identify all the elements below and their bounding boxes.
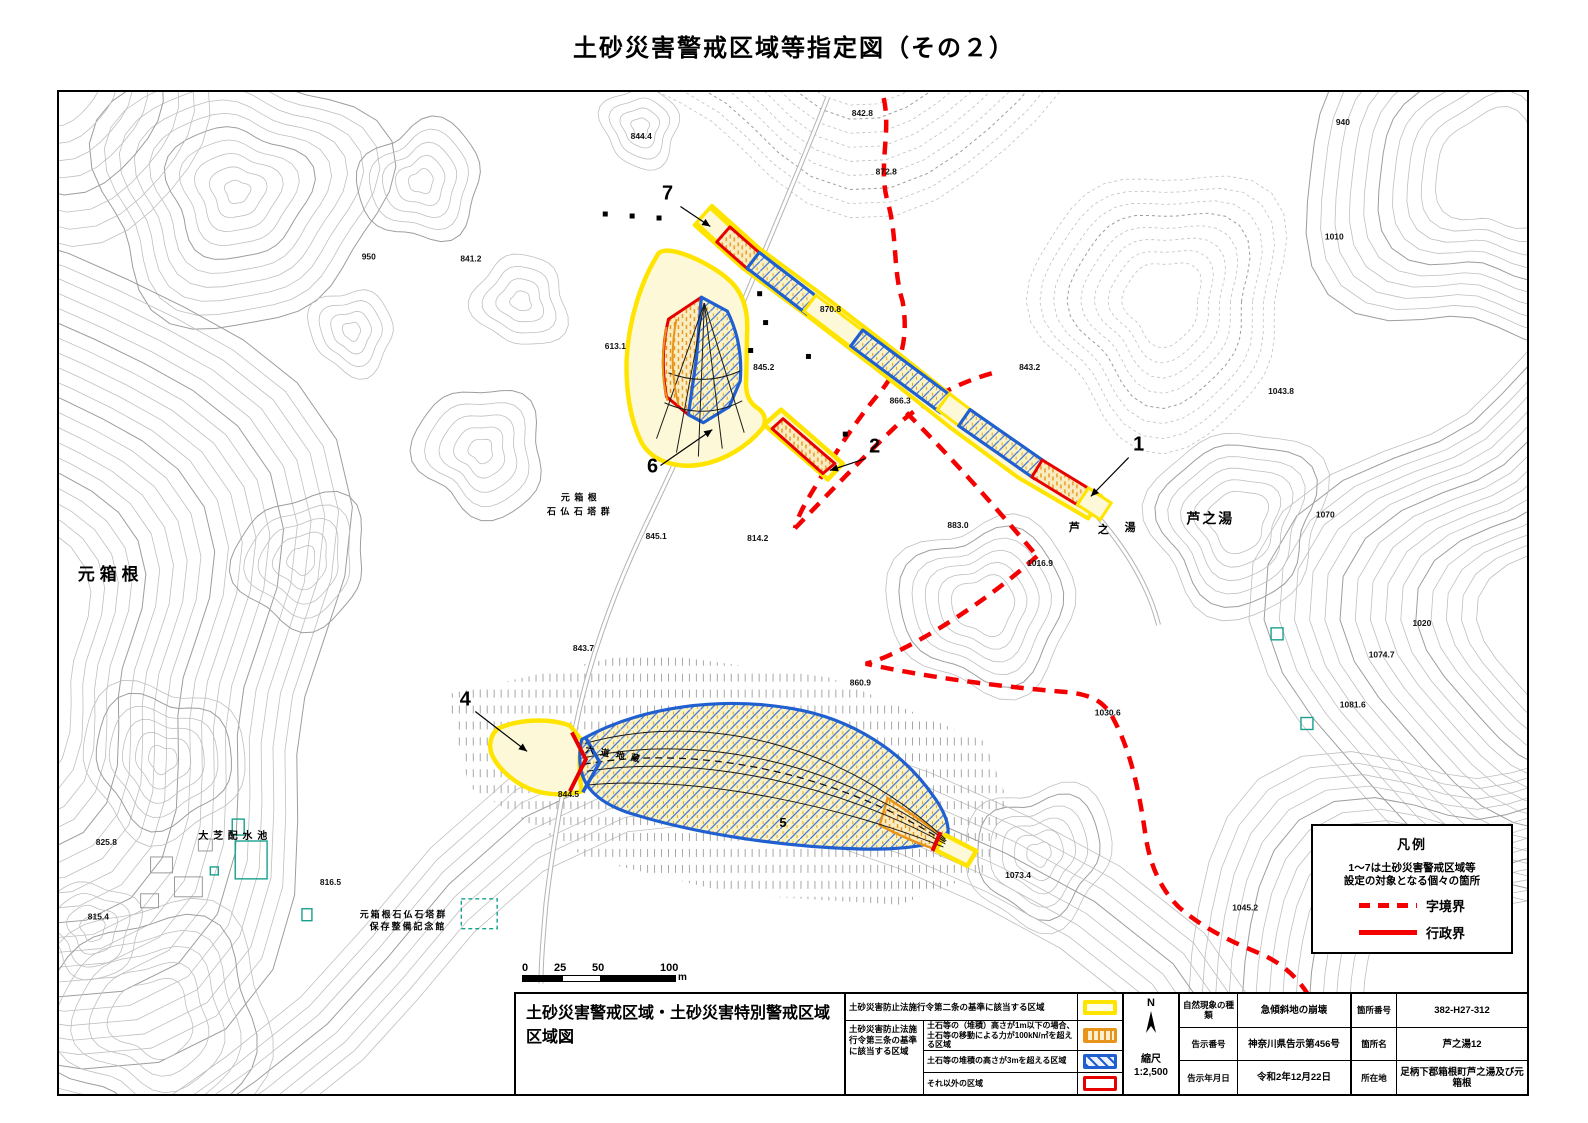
svg-text:843.2: 843.2	[1019, 362, 1040, 372]
field-notice-date: 告示年月日 令和2年12月22日	[1180, 1061, 1350, 1094]
svg-text:大 芝 配 水 池: 大 芝 配 水 池	[198, 829, 268, 842]
svg-text:元箱根: 元箱根	[78, 564, 144, 584]
svg-text:844.5: 844.5	[558, 789, 579, 799]
svg-text:1: 1	[1133, 434, 1144, 456]
red-solid-line-sample	[1359, 930, 1417, 935]
svg-text:613.1: 613.1	[605, 341, 626, 351]
svg-text:1045.2: 1045.2	[1232, 903, 1258, 913]
yellow-zone-swatch	[1083, 1000, 1117, 1015]
svg-text:841.2: 841.2	[460, 253, 481, 263]
north-arrow: N	[1143, 994, 1159, 1049]
svg-text:6: 6	[647, 455, 658, 477]
svg-text:866.3: 866.3	[890, 396, 911, 406]
svg-text:1030.6: 1030.6	[1095, 708, 1121, 718]
field-phenomenon: 自然現象の種類 急傾斜地の崩壊	[1180, 994, 1350, 1028]
svg-text:940: 940	[1336, 117, 1350, 127]
svg-text:870.8: 870.8	[820, 304, 841, 314]
zone-row-orange: 土石等の（堆積）高さが1m以下の場合、土石等の移動による力が100kN/㎡を超え…	[924, 1021, 1122, 1051]
svg-text:芦: 芦	[1069, 520, 1080, 534]
orange-zone-swatch	[1083, 1028, 1117, 1043]
contour-lines	[59, 92, 1527, 1094]
svg-text:1020: 1020	[1413, 618, 1432, 628]
svg-text:842.8: 842.8	[852, 108, 873, 118]
svg-text:845.2: 845.2	[753, 362, 774, 372]
svg-text:4: 4	[460, 689, 471, 711]
page-title: 土砂災害警戒区域等指定図（その２）	[0, 28, 1588, 63]
page: 土砂災害警戒区域等指定図（その２）	[0, 0, 1588, 1123]
svg-text:872.8: 872.8	[876, 167, 897, 177]
legend-item-aza-boundary: 字境界	[1313, 896, 1511, 915]
svg-text:1073.4: 1073.4	[1005, 870, 1031, 880]
svg-text:845.1: 845.1	[646, 531, 667, 541]
svg-text:1043.8: 1043.8	[1268, 386, 1294, 396]
zone-row-blue: 土石等の堆積の高さが3mを超える区域	[924, 1051, 1122, 1073]
svg-text:843.7: 843.7	[573, 643, 594, 653]
svg-text:860.9: 860.9	[850, 678, 871, 688]
compass-and-scale: N 縮尺 1:2,500	[1124, 994, 1180, 1094]
site-fields: 箇所番号 382-H27-312 箇所名 芦之湯12 所在地 足柄下郡箱根町芦之…	[1352, 994, 1527, 1094]
svg-text:814.2: 814.2	[747, 533, 768, 543]
svg-text:816.5: 816.5	[320, 877, 341, 887]
zone3-header: 土砂災害防止法施行令第三条の基準に該当する区域	[846, 1021, 924, 1094]
scale-bar-strip	[522, 975, 676, 982]
legend-title: 凡例	[1313, 834, 1511, 853]
scale-ticks: 0 25 50 100	[520, 962, 700, 974]
svg-text:1074.7: 1074.7	[1369, 650, 1395, 660]
svg-text:1070: 1070	[1316, 509, 1335, 519]
svg-text:2: 2	[869, 436, 880, 458]
field-location: 所在地 足柄下郡箱根町芦之湯及び元箱根	[1352, 1061, 1527, 1094]
red-dashed-line-sample	[1359, 903, 1417, 908]
field-notice-number: 告示番号 神奈川県告示第456号	[1180, 1028, 1350, 1062]
scale-text: 縮尺 1:2,500	[1134, 1053, 1168, 1079]
scale-bar: 0 25 50 100 m	[520, 962, 700, 990]
map-frame: 元箱根元 箱 根石 仏 石 塔 群芦之湯芦之湯大 芝 配 水 池元箱根石仏石塔群…	[57, 90, 1529, 1096]
zone-legend-table: 土砂災害防止法施行令第二条の基準に該当する区域 土砂災害防止法施行令第三条の基準…	[846, 994, 1124, 1094]
svg-text:1016.9: 1016.9	[1027, 558, 1053, 568]
svg-text:815.4: 815.4	[88, 912, 109, 922]
svg-text:石 仏 石 塔 群: 石 仏 石 塔 群	[546, 505, 611, 516]
zone-row-keikai: 土砂災害防止法施行令第二条の基準に該当する区域	[846, 994, 1122, 1021]
legend-item-admin-boundary: 行政界	[1313, 923, 1511, 942]
topographic-map: 元箱根元 箱 根石 仏 石 塔 群芦之湯芦之湯大 芝 配 水 池元箱根石仏石塔群…	[59, 92, 1527, 1094]
svg-text:1010: 1010	[1325, 231, 1344, 241]
map-type-title: 土砂災害警戒区域・土砂災害特別警戒区域 区域図	[516, 994, 846, 1094]
svg-text:保存整備記念館: 保存整備記念館	[369, 921, 447, 932]
field-site-number: 箇所番号 382-H27-312	[1352, 994, 1527, 1028]
legend-box: 凡例 1～7は土砂災害警戒区域等 設定の対象となる個々の箇所 字境界 行政界	[1311, 824, 1513, 954]
blue-zone-swatch	[1083, 1054, 1117, 1069]
legend-note: 1～7は土砂災害警戒区域等 設定の対象となる個々の箇所	[1313, 862, 1511, 888]
svg-text:844.4: 844.4	[631, 131, 652, 141]
notice-fields: 自然現象の種類 急傾斜地の崩壊 告示番号 神奈川県告示第456号 告示年月日 令…	[1180, 994, 1352, 1094]
svg-text:883.0: 883.0	[947, 520, 968, 530]
svg-text:7: 7	[662, 183, 673, 205]
svg-text:元 箱 根: 元 箱 根	[561, 491, 598, 502]
svg-text:湯: 湯	[1125, 520, 1136, 534]
scale-unit: m	[678, 972, 687, 983]
svg-text:950: 950	[362, 251, 376, 261]
red-zone-swatch	[1083, 1076, 1117, 1091]
svg-text:5: 5	[779, 815, 786, 830]
zone-row-red: それ以外の区域	[924, 1073, 1122, 1094]
svg-text:825.8: 825.8	[96, 837, 117, 847]
field-site-name: 箇所名 芦之湯12	[1352, 1028, 1527, 1062]
svg-text:芦之湯: 芦之湯	[1186, 510, 1234, 526]
info-table: 土砂災害警戒区域・土砂災害特別警戒区域 区域図 土砂災害防止法施行令第二条の基準…	[514, 992, 1529, 1096]
svg-text:元箱根石仏石塔群: 元箱根石仏石塔群	[360, 909, 448, 920]
svg-text:1081.6: 1081.6	[1340, 700, 1366, 710]
svg-text:之: 之	[1098, 522, 1109, 536]
north-arrow-icon	[1143, 1009, 1159, 1037]
